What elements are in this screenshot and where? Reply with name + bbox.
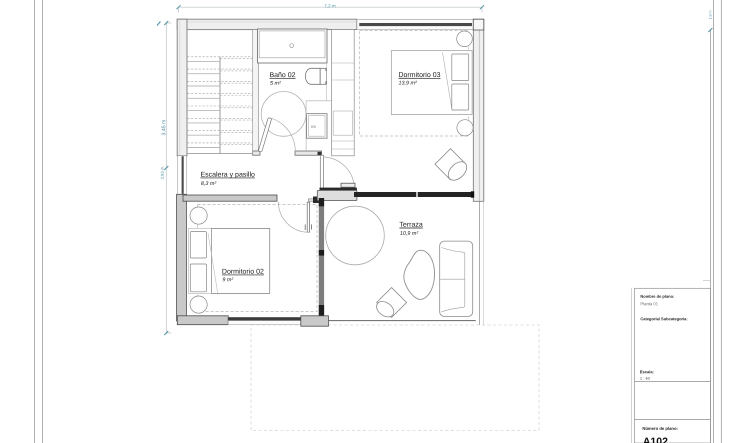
svg-text:3,93 m: 3,93 m (160, 166, 165, 179)
svg-text:7,2 m: 7,2 m (324, 3, 336, 8)
svg-text:8,3 m²: 8,3 m² (201, 181, 216, 187)
svg-text:Nombre de plano:: Nombre de plano: (640, 294, 674, 299)
svg-text:Baño 02: Baño 02 (269, 72, 295, 79)
svg-text:Categoría/ Subcategoría:: Categoría/ Subcategoría: (640, 316, 687, 321)
svg-text:Escala:: Escala: (640, 369, 654, 374)
svg-text:Terraza: Terraza (399, 222, 422, 229)
svg-text:1 : 40: 1 : 40 (640, 376, 651, 381)
svg-text:1,9 m: 1,9 m (708, 10, 712, 19)
svg-text:Dormitorio 02: Dormitorio 02 (222, 269, 264, 276)
svg-text:10,9 m²: 10,9 m² (400, 231, 418, 237)
svg-text:5 m²: 5 m² (270, 81, 281, 87)
svg-text:A102: A102 (643, 436, 668, 443)
svg-text:B/D: B/D (311, 125, 317, 129)
svg-text:Dormitorio 03: Dormitorio 03 (398, 72, 440, 79)
svg-text:Escalera y pasillo: Escalera y pasillo (200, 172, 255, 179)
svg-text:Planta 01: Planta 01 (640, 301, 658, 306)
svg-text:13,9 m²: 13,9 m² (398, 81, 416, 87)
svg-text:3,45 m: 3,45 m (161, 120, 167, 136)
svg-text:Número de plano:: Número de plano: (642, 426, 678, 431)
svg-text:9 m²: 9 m² (222, 277, 233, 283)
